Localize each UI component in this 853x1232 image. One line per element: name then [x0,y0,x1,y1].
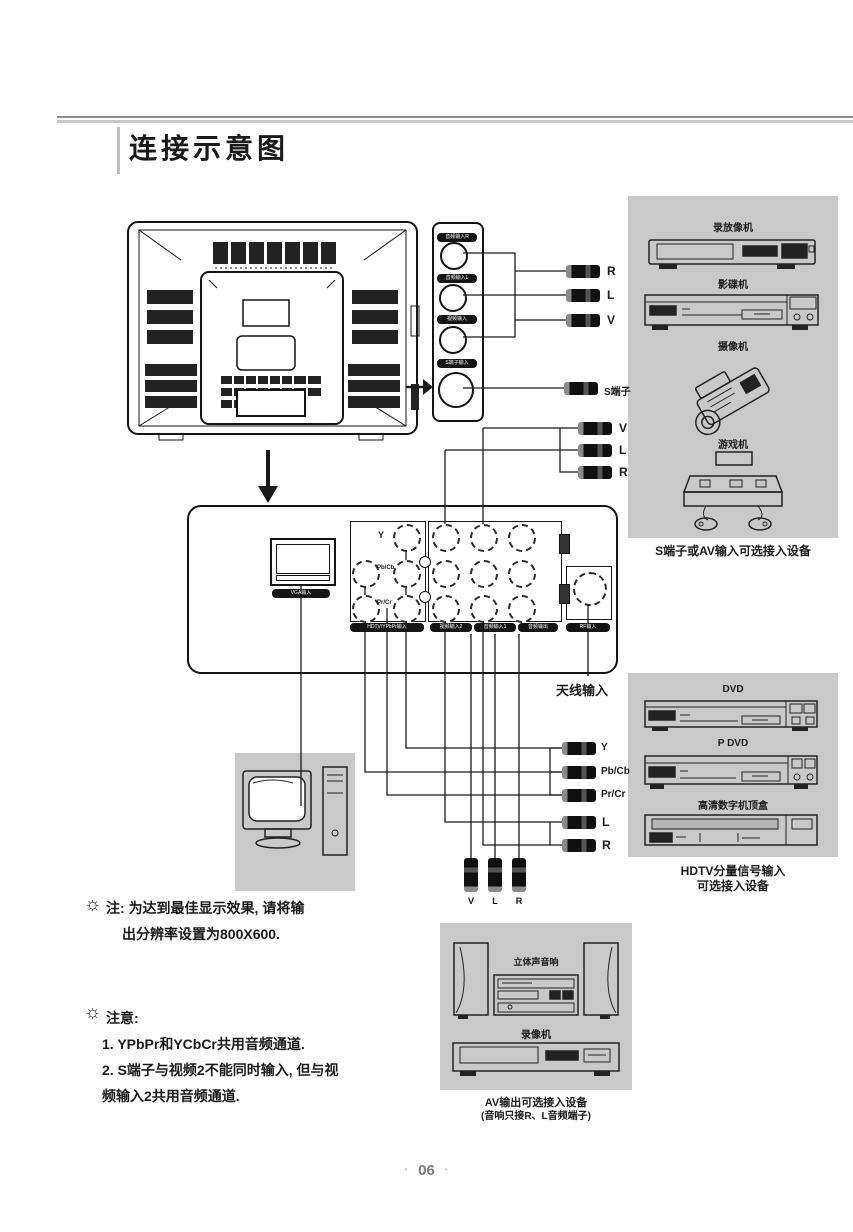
vcr2-illustration [450,1039,622,1079]
cable-label-r: R [607,264,616,278]
vcr-illustration [645,234,820,274]
cable-label-l2: L [619,443,626,457]
rca-plug-prcr[interactable] [562,789,596,802]
hdtv-audio-r-jack[interactable] [352,595,380,623]
av-jack[interactable] [508,560,536,588]
device-label-camcorder: 摄像机 [628,338,838,353]
video-in-jack[interactable] [439,326,467,354]
device-label-pdvd: P DVD [628,738,838,749]
av-jack[interactable] [508,595,536,623]
camcorder-illustration [683,348,783,440]
av-jack[interactable] [432,595,460,623]
hdtv-pb-label: Pb/Cb [377,565,393,572]
note1-line1: 注: 为达到最佳显示效果, 请将输 [106,898,304,918]
rca-plug-l3[interactable] [562,816,596,829]
audio-in-r-jack[interactable] [440,242,468,270]
hdtv-block-label: HDTV/YPbPr输入 [350,623,424,632]
disc-player-illustration [642,289,824,335]
side-jack-strip: 音频输入R 音频输入L 视频输入 S端子输入 [432,222,484,422]
settop-box-illustration [642,811,824,851]
device-label-stereo: 立体声音响 [440,955,632,968]
rca-plug-v-out[interactable] [464,858,478,892]
panel-side-tab [559,584,570,604]
stereo-system-illustration [450,939,622,1019]
note2-item1: 1. YPbPr和YCbCr共用音频通道. [102,1034,305,1054]
pc-illustration [239,763,351,883]
svideo-jack[interactable] [438,372,474,408]
device-label-game-console: 游戏机 [628,436,838,451]
note-icon: ☼ [84,894,101,916]
cable-label-svideo: S端子 [604,383,631,398]
cable-label-r2: R [619,465,628,479]
av-jack[interactable] [432,560,460,588]
av-jack[interactable] [508,524,536,552]
rca-plug-r[interactable] [566,265,600,278]
rf-label: RF输入 [566,623,610,632]
rca-plug-r-out[interactable] [512,858,526,892]
device-label-vcr: 录放像机 [628,219,838,234]
panel-pc [235,753,355,891]
cable-label-pbcb: Pb/Cb [601,766,630,777]
note2-item2: 2. S端子与视频2不能同时输入, 但与视 [102,1060,338,1080]
panel-av-out-devices: 立体声音响 录像机 [440,923,632,1090]
hdtv-y-jack[interactable] [393,524,421,552]
panel-hdtv-devices: DVD P DVD 高清数字机顶盒 [628,673,838,857]
device-label-dvd: DVD [628,684,838,695]
device-label-disc-player: 影碟机 [628,276,838,291]
cable-label-y: Y [601,742,608,753]
rca-plug-v2[interactable] [578,422,612,435]
note1-line2: 出分辨率设置为800X600. [122,924,280,944]
page-number: 06 [418,1162,435,1179]
manual-page: 连接示意图 录放像机 影碟机 摄像机 游戏机 [0,0,853,1232]
rca-plug-l[interactable] [566,289,600,302]
hdtv-pb-jack[interactable] [393,560,421,588]
rca-plug-v[interactable] [566,314,600,327]
av-jack[interactable] [470,595,498,623]
panel-side-tab [559,534,570,554]
page-footer: ·06· [0,1162,853,1179]
hdtv-y-label: Y [378,530,384,540]
av-jack[interactable] [432,524,460,552]
cable-label-v-out: V [463,896,479,906]
cable-label-l: L [607,288,614,302]
rca-plug-pbcb[interactable] [562,766,596,779]
cable-label-v2: V [619,421,627,435]
hdtv-pr-jack[interactable] [393,595,421,623]
panel-hdtv-caption-line2: 可选接入设备 [628,877,838,894]
av-jack[interactable] [470,560,498,588]
cable-label-l3: L [602,815,609,829]
footer-dot-right: · [445,1164,449,1176]
panel-av-out-caption-line2: (音响只接R、L音频端子) [440,1107,632,1122]
rca-plug-l-out[interactable] [488,858,502,892]
cable-label-r3: R [602,838,611,852]
vga-connector[interactable] [270,538,336,586]
cable-label-v: V [607,313,615,327]
hdtv-audio-l-jack[interactable] [352,560,380,588]
rca-plug-l2[interactable] [578,444,612,457]
page-title: 连接示意图 [129,127,289,167]
jack-label-video-in: 视频输入 [437,315,477,324]
header-rule [57,116,853,120]
audio-in-l-jack[interactable] [439,284,467,312]
note2-icon: ☼ [84,1002,101,1024]
av-jack[interactable] [470,524,498,552]
note2-item3: 频输入2共用音频通道. [102,1086,240,1106]
cable-label-prcr: Pr/Cr [601,789,625,800]
audio-out-label: 音频输出 [518,623,558,632]
svideo-plug[interactable] [564,382,598,395]
panel-divider-hole [419,591,431,603]
tv-rear-illustration [125,214,420,446]
game-console-illustration [676,450,791,532]
footer-dot-left: · [404,1164,408,1176]
note2-label: 注意: [106,1008,139,1028]
device-label-vcr2: 录像机 [440,1026,632,1041]
jack-label-audio-l: 音频输入L [437,274,477,283]
cable-label-l-out: L [487,896,503,906]
cable-label-r-out: R [511,896,527,906]
title-accent-bar [117,127,120,174]
pdvd-illustration [642,751,824,793]
panel-s-av-caption: S端子或AV输入可选接入设备 [628,542,838,559]
panel-s-av-devices: 录放像机 影碟机 摄像机 游戏机 [628,196,838,538]
down-arrow-icon [258,450,278,503]
rca-plug-r2[interactable] [578,466,612,479]
audio-in1-label: 音频输入1 [474,623,516,632]
antenna-in-label: 天线输入 [556,680,608,699]
panel-divider-hole [419,556,431,568]
jack-label-svideo: S端子输入 [437,359,477,368]
video-in2-label: 视频输入2 [430,623,472,632]
jack-label-audio-r: 音频输入R [437,233,477,242]
vga-label: VGA输入 [272,589,330,598]
dvd-illustration [642,697,824,735]
hdtv-pr-label: Pr/Cr [377,600,393,607]
device-label-stb: 高清数字机顶盒 [628,797,838,812]
note1-label: 注: [106,900,125,916]
rca-plug-r3[interactable] [562,839,596,852]
rf-connector[interactable] [573,572,607,606]
rca-plug-y[interactable] [562,742,596,755]
